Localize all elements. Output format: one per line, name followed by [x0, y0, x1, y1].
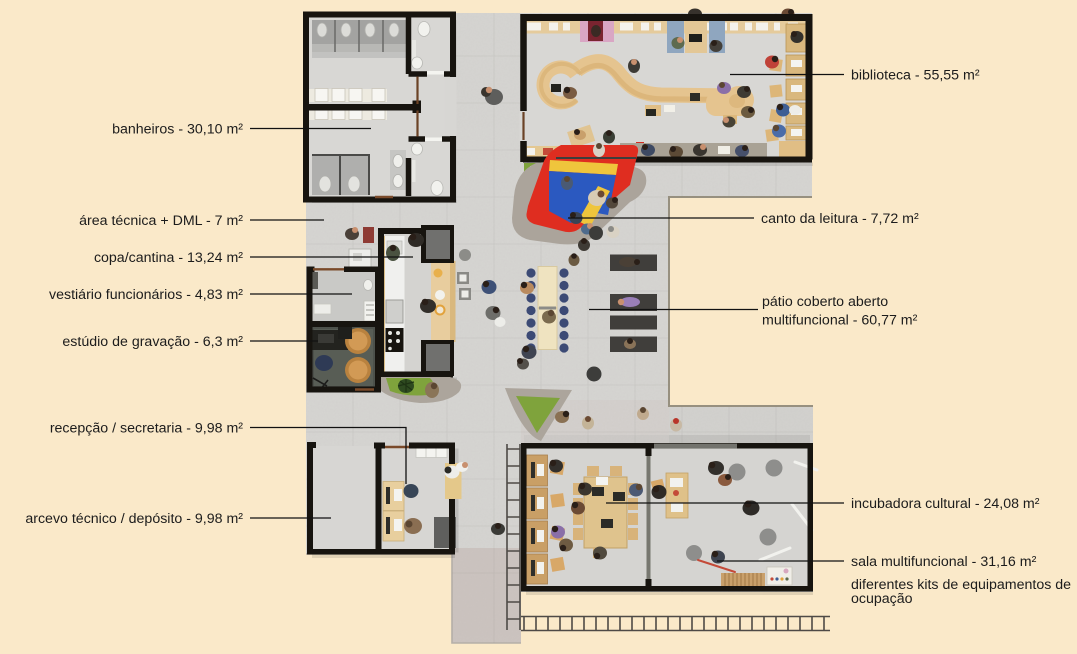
svg-text:sala multifuncional - 31,16 m²: sala multifuncional - 31,16 m² — [851, 554, 1037, 570]
svg-text:recepção / secretaria - 9,98 m: recepção / secretaria - 9,98 m² — [50, 421, 243, 437]
svg-text:multifuncional - 60,77 m²: multifuncional - 60,77 m² — [762, 313, 918, 329]
svg-text:banheiros - 30,10 m²: banheiros - 30,10 m² — [112, 122, 243, 138]
svg-text:copa/cantina - 13,24 m²: copa/cantina - 13,24 m² — [94, 250, 243, 266]
svg-text:ocupação: ocupação — [851, 591, 913, 607]
svg-text:estúdio de gravação - 6,3 m²: estúdio de gravação - 6,3 m² — [62, 334, 243, 350]
svg-text:canto da leitura - 7,72 m²: canto da leitura - 7,72 m² — [761, 211, 919, 227]
svg-text:biblioteca - 55,55 m²: biblioteca - 55,55 m² — [851, 68, 980, 84]
svg-text:arcevo técnico / depósito - 9,: arcevo técnico / depósito - 9,98 m² — [25, 511, 243, 527]
svg-text:pátio coberto aberto: pátio coberto aberto — [762, 294, 888, 310]
svg-text:incubadora cultural - 24,08 m²: incubadora cultural - 24,08 m² — [851, 496, 1040, 512]
svg-text:vestiário funcionários - 4,83: vestiário funcionários - 4,83 m² — [49, 287, 243, 303]
svg-text:área técnica + DML - 7 m²: área técnica + DML - 7 m² — [79, 213, 243, 229]
